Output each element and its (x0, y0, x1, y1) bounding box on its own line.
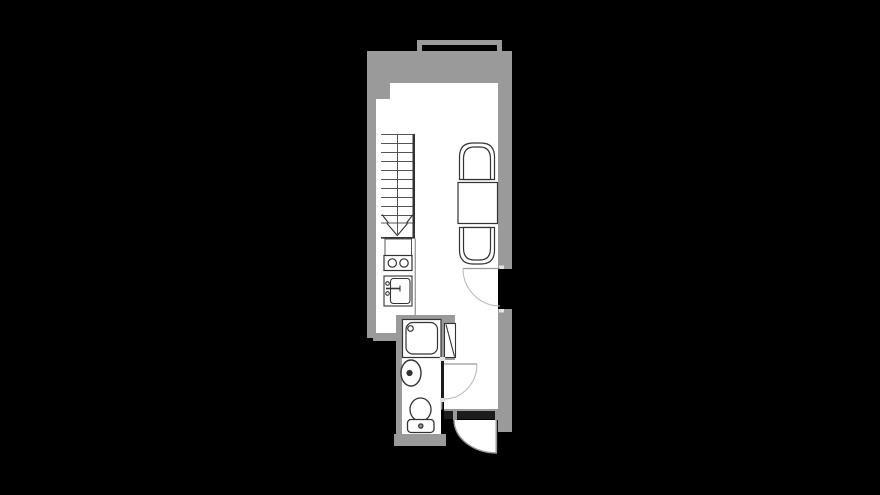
balcony-railing-top (417, 40, 502, 45)
entrance-threshold (457, 411, 495, 419)
stair-bottom-edge (381, 237, 415, 239)
kitchen-sink (384, 276, 412, 306)
entrance-threshold-left (444, 411, 453, 419)
bathroom-door-bar (441, 361, 444, 398)
sink-knob-2 (386, 292, 390, 296)
window-center-tick (456, 58, 463, 66)
shower-folding-door (445, 324, 456, 358)
stair-right-edge (413, 134, 416, 238)
wall-top-left-chunk (367, 51, 390, 99)
bathroom-wall-thin (441, 402, 443, 410)
wall-top-band (390, 51, 512, 83)
balcony-railing-left-stub (417, 40, 422, 51)
sink-knob-1 (386, 282, 390, 286)
entrance-jamb-right (495, 411, 499, 420)
wall-right-lower (498, 309, 512, 432)
toilet-button (419, 424, 423, 428)
dining-table (458, 183, 498, 224)
washbasin (401, 360, 421, 386)
wall-bath-bottom-band (394, 434, 446, 446)
shower-drain (408, 326, 414, 332)
wall-right-upper (498, 83, 512, 269)
stove-burner-right (400, 259, 408, 267)
floor-plan (0, 0, 880, 495)
entrance-wall-line (444, 409, 499, 411)
toilet (408, 398, 435, 433)
balcony-railing-right-stub (497, 40, 502, 52)
kitchen-stove (384, 256, 412, 271)
washbasin-faucet (407, 371, 412, 376)
shower-unit (403, 320, 442, 358)
stove-burner-left (388, 259, 396, 267)
dining-set (458, 143, 498, 264)
entrance-jamb-left (453, 411, 457, 420)
floor-plan-stage (0, 0, 880, 495)
dining-chair-bottom-inner (464, 228, 491, 261)
toilet-bowl (410, 398, 431, 421)
bathroom-door-jamb-top (440, 357, 445, 361)
wall-left-strip (367, 99, 376, 338)
right-door-jamb-bottom (499, 309, 504, 313)
dining-chair-top-inner (464, 147, 491, 180)
